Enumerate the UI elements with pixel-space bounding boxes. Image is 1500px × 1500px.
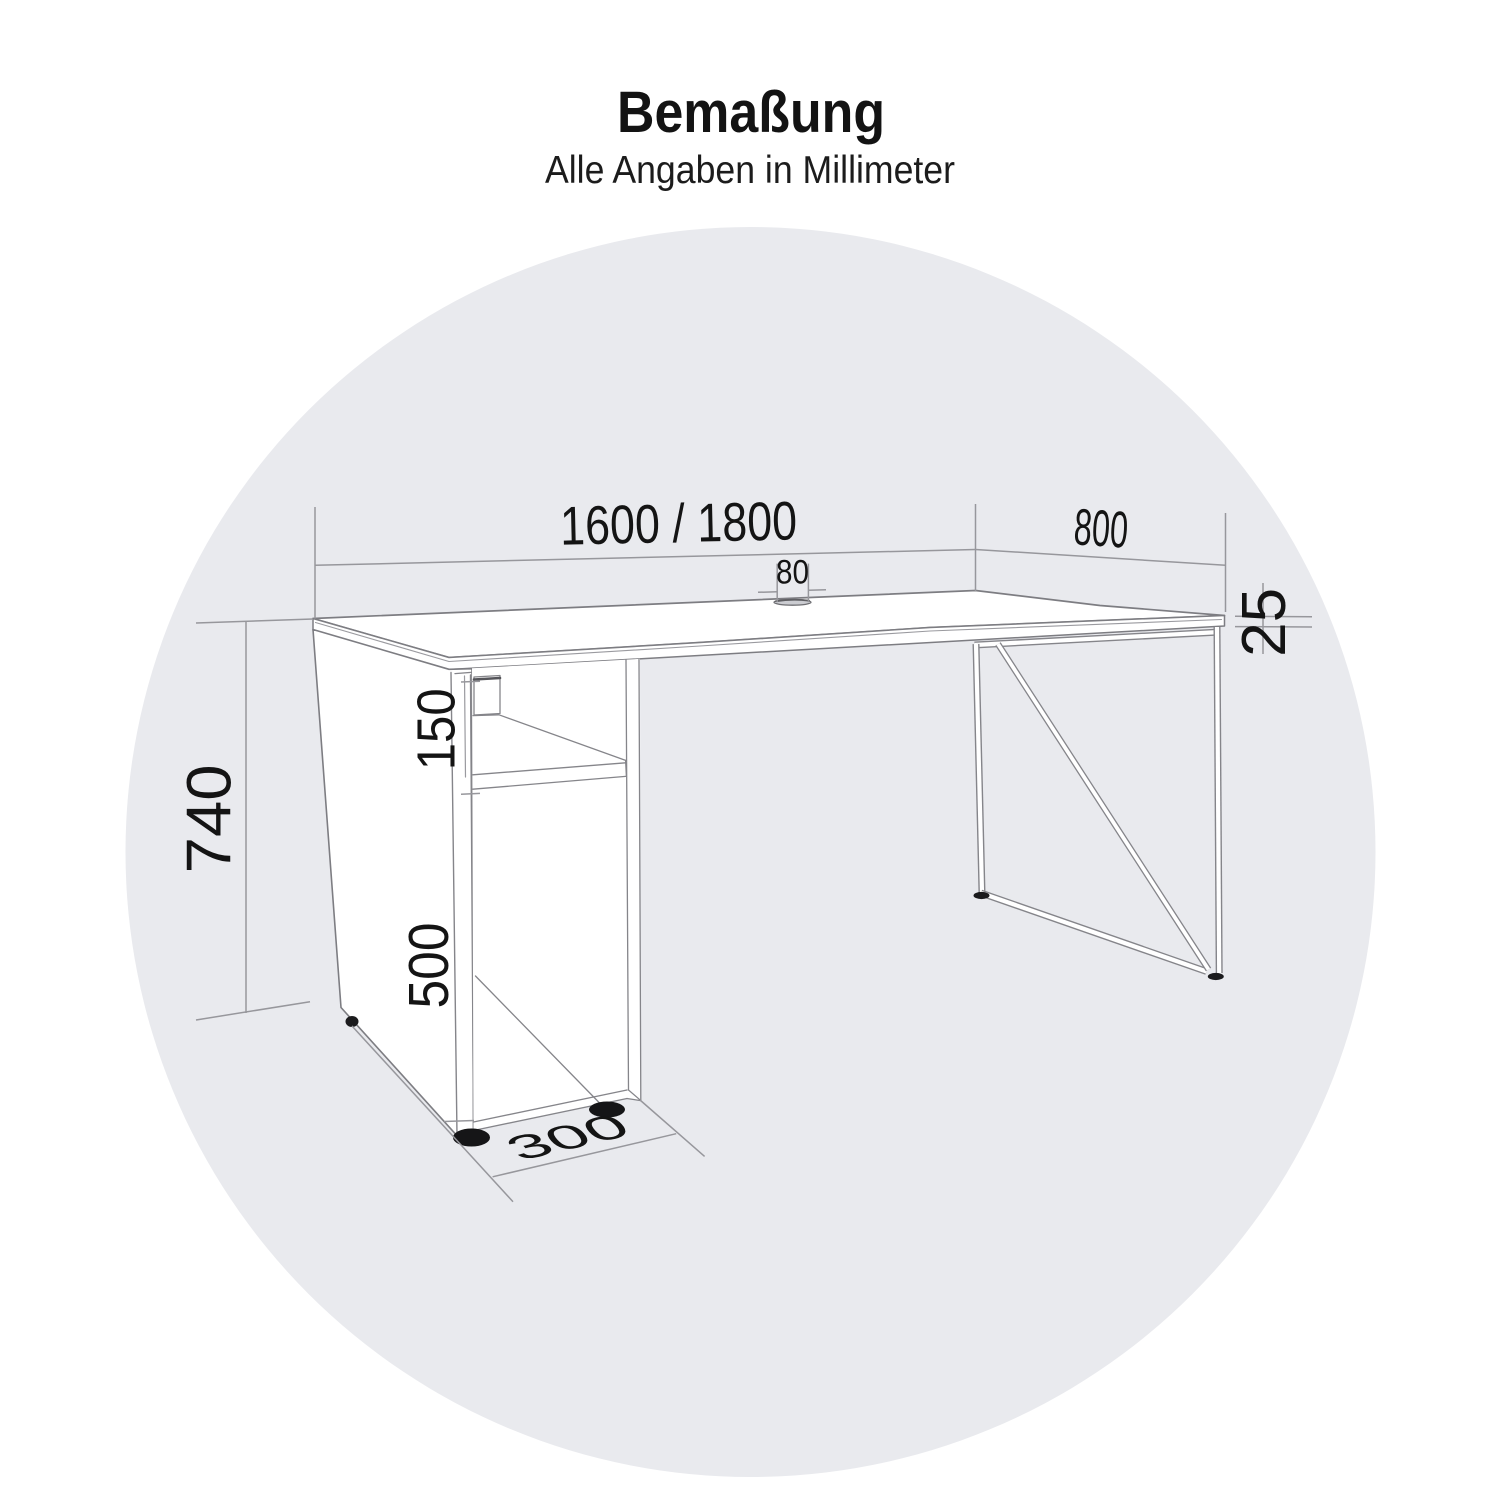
svg-text:500: 500 — [398, 923, 461, 1009]
svg-text:80: 80 — [776, 554, 809, 592]
svg-text:150: 150 — [406, 688, 466, 770]
svg-text:25: 25 — [1230, 588, 1299, 657]
svg-text:Bemaßung: Bemaßung — [617, 80, 885, 145]
svg-text:740: 740 — [174, 764, 244, 873]
svg-text:1600 / 1800: 1600 / 1800 — [559, 490, 797, 556]
svg-text:800: 800 — [1072, 497, 1130, 558]
svg-text:Alle Angaben in Millimeter: Alle Angaben in Millimeter — [545, 149, 955, 192]
